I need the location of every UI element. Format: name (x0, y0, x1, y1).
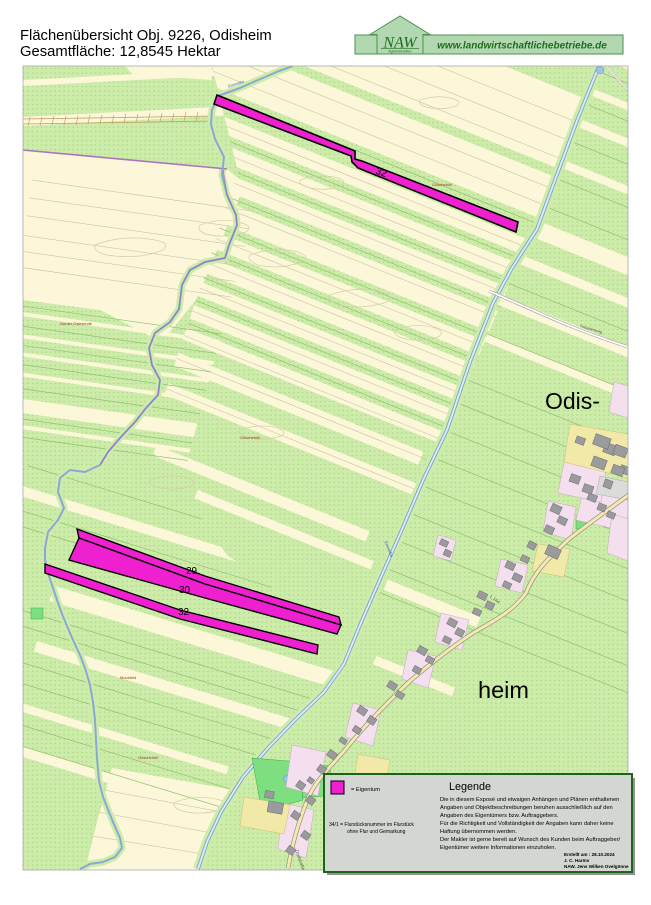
svg-text:Die in diesem Exposé und etwai: Die in diesem Exposé und etwaigen Anhäng… (440, 797, 619, 803)
svg-text:Göschehöll: Göschehöll (138, 755, 158, 760)
svg-text:Norder Osterende: Norder Osterende (60, 321, 93, 326)
svg-text:www.landwirtschaftlichebetrieb: www.landwirtschaftlichebetriebe.de (437, 41, 607, 52)
svg-text:Göschehöll: Göschehöll (240, 435, 260, 440)
svg-text:Eigentümer weitere Information: Eigentümer weitere Informationen einzuho… (440, 845, 556, 851)
svg-text:= Eigentum: = Eigentum (351, 787, 380, 793)
svg-text:Erstellt am : 28.10.2024: Erstellt am : 28.10.2024 (564, 852, 615, 857)
svg-text:Gesamtfläche: 12,8545 Hektar: Gesamtfläche: 12,8545 Hektar (20, 44, 221, 60)
svg-text:ohne Flur und Gemarkung: ohne Flur und Gemarkung (347, 829, 406, 835)
svg-text:Angaben und Objektbeschreibung: Angaben und Objektbeschreibungen beruhen… (440, 805, 613, 811)
svg-text:Odis-: Odis- (545, 388, 600, 414)
svg-text:heim: heim (478, 677, 529, 703)
svg-text:Für die Richtigkeit und Vollst: Für die Richtigkeit und Vollständigkeit … (440, 821, 614, 827)
svg-text:J. C. Harms: J. C. Harms (564, 858, 590, 863)
svg-text:Flächenübersicht Obj. 9226, Od: Flächenübersicht Obj. 9226, Odisheim (20, 28, 272, 44)
svg-text:29: 29 (186, 566, 198, 577)
svg-text:Moosfeld: Moosfeld (120, 675, 136, 680)
svg-text:Der Makler ist gerne bereit au: Der Makler ist gerne bereit auf Wunsch d… (440, 837, 621, 843)
svg-text:Haftung übernommen werden.: Haftung übernommen werden. (440, 829, 517, 835)
svg-text:Angaben des Eigentümers bzw. A: Angaben des Eigentümers bzw. Auftraggebe… (440, 813, 559, 819)
svg-text:34/1 = Flurstücksnummer im Fl: 34/1 = Flurstücksnummer im Flurstück (329, 822, 414, 828)
svg-text:Göschehöll: Göschehöll (432, 182, 452, 187)
svg-text:NAW. Jens Wilken Ovelgönne: NAW. Jens Wilken Ovelgönne (564, 864, 629, 869)
svg-text:30: 30 (179, 585, 191, 596)
svg-text:Agrarimmobilien: Agrarimmobilien (388, 50, 411, 54)
svg-text:Legende: Legende (449, 781, 491, 793)
svg-text:32: 32 (178, 607, 190, 618)
